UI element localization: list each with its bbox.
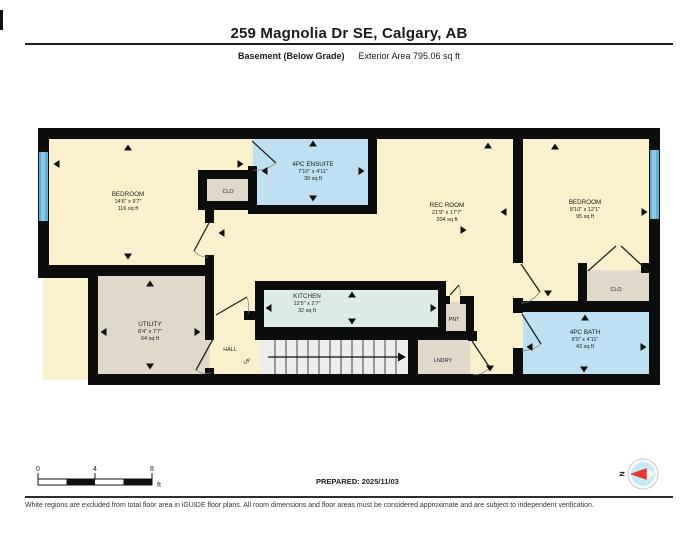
bedroom-left-area: 116 sq ft — [118, 206, 139, 212]
closet-right-label: CLO — [610, 287, 621, 293]
window-cap — [39, 221, 48, 224]
closet-left-label: CLO — [222, 189, 233, 195]
scale-tick-4: 4 — [93, 466, 97, 473]
scale-unit-label: ft — [157, 482, 161, 489]
scale-tick-0: 0 — [36, 466, 40, 473]
kitchen-area: 32 sq ft — [298, 308, 317, 314]
rec-room-name: REC ROOM — [430, 202, 465, 209]
compass-north-label: N — [620, 471, 627, 476]
bedroom-right-name: BEDROOM — [569, 199, 602, 206]
ensuite-area: 39 sq ft — [304, 176, 323, 182]
bath-name: 4PC BATH — [570, 329, 601, 336]
utility-dims: 8'4" x 7'7" — [138, 329, 162, 335]
floor-plan-page: 259 Magnolia Dr SE, Calgary, AB Basement… — [0, 0, 698, 540]
bedroom-left-dims: 14'6" x 9'7" — [114, 199, 141, 205]
kitchen-name: KITCHEN — [293, 293, 321, 300]
floor-plan-drawing: BEDROOM 14'6" x 9'7" 116 sq ft 4PC ENSUI… — [0, 0, 698, 540]
ensuite-dims: 7'10" x 4'11" — [298, 169, 328, 175]
laundry-label: LNDRY — [434, 358, 453, 364]
utility-area: 64 sq ft — [141, 336, 160, 342]
right-window-glass — [652, 150, 656, 220]
bath-dims: 8'9" x 4'11" — [572, 337, 599, 343]
bath-floor — [523, 307, 655, 379]
scan-artifact — [0, 10, 3, 30]
stairs-floor — [260, 336, 412, 380]
scale-bar: 0 4 8 ft — [36, 466, 161, 489]
window-cap — [650, 219, 659, 222]
compass: N — [620, 459, 659, 489]
scale-tick-8: 8 — [150, 466, 154, 473]
disclaimer-text: White regions are excluded from total fl… — [25, 502, 594, 509]
bedroom-left-name: BEDROOM — [112, 191, 145, 198]
utility-name: UTILITY — [138, 321, 162, 328]
kitchen-dims: 12'5" x 2'7" — [293, 301, 320, 307]
left-window-glass — [41, 152, 45, 222]
bath-area: 43 sq ft — [576, 344, 595, 350]
rec-room-area: 204 sq ft — [436, 217, 458, 223]
pantry-label: PNT — [449, 317, 460, 323]
ensuite-name: 4PC ENSUITE — [292, 161, 333, 168]
footer-divider — [25, 496, 673, 498]
bedroom-right-area: 95 sq ft — [576, 214, 595, 220]
rec-room-dims: 21'9" x 17'7" — [432, 210, 462, 216]
hall-label: HALL — [223, 347, 237, 353]
bedroom-right-dims: 8'10" x 12'1" — [570, 207, 600, 213]
room-fills — [43, 133, 655, 380]
prepared-date: PREPARED: 2025/11/03 — [316, 477, 399, 486]
